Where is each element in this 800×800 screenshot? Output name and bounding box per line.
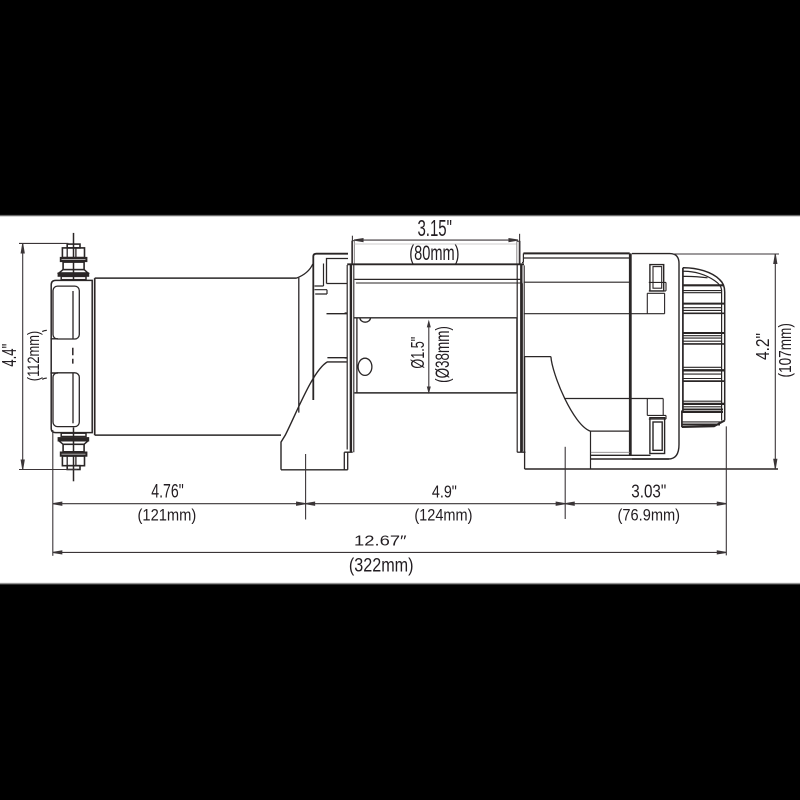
svg-text:4.2": 4.2"	[752, 333, 773, 360]
svg-text:(121mm): (121mm)	[138, 507, 197, 525]
svg-text:4.9": 4.9"	[432, 482, 457, 502]
svg-text:3.15": 3.15"	[417, 215, 452, 241]
svg-text:4.4": 4.4"	[0, 344, 21, 367]
svg-text:(124mm): (124mm)	[414, 507, 472, 525]
svg-text:(80mm): (80mm)	[409, 241, 459, 265]
svg-text:(112mm): (112mm)	[24, 331, 43, 381]
svg-text:12.67″: 12.67″	[354, 533, 407, 549]
svg-text:Ø1.5": Ø1.5"	[408, 337, 429, 369]
svg-text:(Ø38mm): (Ø38mm)	[433, 326, 454, 383]
svg-text:(107mm): (107mm)	[775, 323, 795, 377]
svg-text:4.76": 4.76"	[151, 482, 184, 503]
svg-text:(322mm): (322mm)	[349, 556, 414, 577]
svg-text:3.03": 3.03"	[631, 482, 666, 503]
svg-text:(76.9mm): (76.9mm)	[618, 507, 681, 525]
